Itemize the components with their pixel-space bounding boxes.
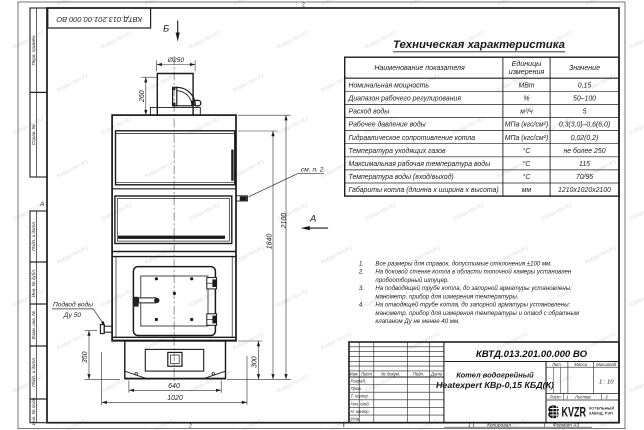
- svg-text:Дата: Дата: [430, 371, 443, 376]
- svg-text:°С: °С: [523, 160, 532, 168]
- svg-text:Подп.: Подп.: [413, 371, 424, 376]
- svg-text:Инв. № дубл.: Инв. № дубл.: [31, 269, 36, 297]
- svg-text:Наименование показателя: Наименование показателя: [374, 64, 465, 72]
- svg-text:Подп. и дата: Подп. и дата: [31, 222, 36, 251]
- svg-text:Масса: Масса: [574, 362, 587, 367]
- svg-text:2: 2: [302, 3, 305, 9]
- svg-text:1.: 1.: [359, 260, 364, 267]
- svg-text:1210х1020х2100: 1210х1020х2100: [558, 187, 611, 194]
- svg-text:Масштаб: Масштаб: [596, 362, 617, 367]
- svg-text:Номинальная мощность: Номинальная мощность: [349, 82, 430, 89]
- svg-text:1840: 1840: [266, 234, 273, 250]
- svg-text:Подвод воды: Подвод воды: [53, 301, 93, 309]
- svg-text:Ø250: Ø250: [167, 57, 184, 64]
- svg-text:манометр, прибор для измерения: манометр, прибор для измерения температу…: [375, 310, 580, 317]
- svg-text:№ докум.: № докум.: [381, 371, 400, 376]
- svg-text:°С: °С: [523, 173, 532, 181]
- svg-text:На боковой стенке котла в обла: На боковой стенке котла в области топочн…: [375, 269, 572, 276]
- svg-text:KVZR: KVZR: [562, 404, 587, 419]
- svg-text:50–100: 50–100: [573, 96, 596, 103]
- svg-text:А: А: [309, 214, 316, 225]
- svg-text:1020: 1020: [167, 395, 183, 402]
- svg-text:Подп. и дата: Подп. и дата: [31, 358, 36, 387]
- svg-text:2: 2: [189, 424, 192, 430]
- svg-text:70/95: 70/95: [576, 174, 593, 181]
- svg-text:Лит.: Лит.: [551, 362, 562, 367]
- svg-text:измерения: измерения: [509, 68, 545, 76]
- svg-text:260: 260: [139, 90, 146, 103]
- svg-text:Единицы: Единицы: [512, 60, 543, 68]
- svg-text:Разраб.: Разраб.: [351, 379, 367, 384]
- svg-text:Габариты котла (длинна х ширин: Габариты котла (длинна х ширина х высота…: [349, 186, 499, 194]
- svg-text:Диапазон рабочего регулировани: Диапазон рабочего регулирования: [348, 95, 462, 103]
- svg-text:Перв. примен.: Перв. примен.: [31, 35, 36, 66]
- svg-text:Техническая характеристика: Техническая характеристика: [393, 39, 565, 51]
- svg-text:Лист: Лист: [549, 395, 561, 400]
- svg-text:Т. контр.: Т. контр.: [351, 394, 370, 399]
- svg-text:Б: Б: [163, 24, 169, 35]
- svg-text:м³/ч: м³/ч: [520, 109, 533, 116]
- svg-text:Инв. № подл.: Инв. № подл.: [31, 397, 36, 426]
- svg-text:640: 640: [168, 383, 180, 390]
- svg-text:Котел водогрейный: Котел водогрейный: [456, 370, 534, 379]
- svg-text:Утв.: Утв.: [351, 417, 361, 422]
- svg-text:см. п. 2.: см. п. 2.: [301, 167, 325, 174]
- svg-text:ЗАВОД, РЭП: ЗАВОД, РЭП: [589, 411, 613, 416]
- svg-text:Взам. инв. №: Взам. инв. №: [31, 311, 36, 339]
- svg-text:°С: °С: [523, 147, 532, 155]
- svg-text:4.: 4.: [359, 302, 364, 309]
- svg-text:Листов: Листов: [574, 395, 591, 400]
- svg-text:115: 115: [579, 161, 590, 168]
- svg-text:Максимальная рабочая температу: Максимальная рабочая температура воды: [349, 160, 491, 168]
- svg-text:не более 250: не более 250: [563, 147, 605, 155]
- svg-text:Гидравлическое сопротивление к: Гидравлическое сопротивление котла: [349, 134, 476, 142]
- svg-text:КВТД.013.201.00.000 ВО: КВТД.013.201.00.000 ВО: [56, 15, 142, 24]
- svg-text:На отводящей трубе котла, до з: На отводящей трубе котла, до запорной ар…: [375, 302, 570, 309]
- svg-text:Н. контр.: Н. контр.: [351, 409, 370, 414]
- svg-text:350: 350: [82, 351, 89, 363]
- svg-text:5: 5: [583, 109, 587, 116]
- svg-text:0,02(0,2): 0,02(0,2): [571, 135, 599, 142]
- svg-text:2.: 2.: [358, 269, 364, 276]
- svg-text:3.: 3.: [359, 285, 364, 292]
- svg-text:0,15: 0,15: [578, 82, 592, 89]
- svg-text:КВТД.013.201.00.000 ВО: КВТД.013.201.00.000 ВО: [476, 349, 588, 360]
- svg-text:2100: 2100: [281, 213, 288, 230]
- svg-text:Температура уходящих газов: Температура уходящих газов: [349, 147, 447, 155]
- svg-text:Heatexpert КВр-0,15 КБД(К): Heatexpert КВр-0,15 КБД(К): [436, 380, 554, 390]
- svg-text:А: А: [39, 201, 44, 208]
- svg-text:Изм.: Изм.: [350, 371, 359, 376]
- svg-text:Рабочее давление воды: Рабочее давление воды: [349, 121, 426, 129]
- svg-text:0,3(3,0)–0,6(6,0): 0,3(3,0)–0,6(6,0): [559, 122, 610, 129]
- svg-text:Значение: Значение: [569, 64, 600, 72]
- svg-text:Пров.: Пров.: [351, 386, 362, 391]
- svg-text:%: %: [523, 96, 529, 103]
- svg-text:Расход воды: Расход воды: [349, 108, 390, 116]
- svg-text:1 : 10: 1 : 10: [599, 380, 614, 386]
- svg-text:На подводящей трубе котла, до: На подводящей трубе котла, до запорной а…: [375, 285, 572, 292]
- svg-text:мм: мм: [522, 187, 532, 194]
- svg-text:манометр, прибор для измерения: манометр, прибор для измерения температу…: [375, 293, 518, 300]
- svg-text:Нач. отд.: Нач. отд.: [351, 401, 370, 406]
- svg-text:МПа (кгс/см²): МПа (кгс/см²): [505, 135, 548, 142]
- svg-text:Лист: Лист: [360, 371, 372, 376]
- svg-text:пробоотборный штуцер.: пробоотборный штуцер.: [375, 277, 449, 284]
- svg-text:МВт: МВт: [518, 82, 534, 89]
- svg-text:300: 300: [252, 356, 259, 368]
- svg-text:Все размеры для справок, допус: Все размеры для справок, допустимые откл…: [375, 260, 552, 267]
- svg-text:Температура воды (вход/выход): Температура воды (вход/выход): [349, 173, 454, 181]
- svg-text:клапаном Ду не менее 40 мм.: клапаном Ду не менее 40 мм.: [375, 318, 459, 325]
- svg-text:Справ. №: Справ. №: [31, 124, 36, 145]
- svg-text:Ду 50: Ду 50: [63, 312, 82, 319]
- svg-text:МПа (кгс/см²): МПа (кгс/см²): [505, 122, 548, 129]
